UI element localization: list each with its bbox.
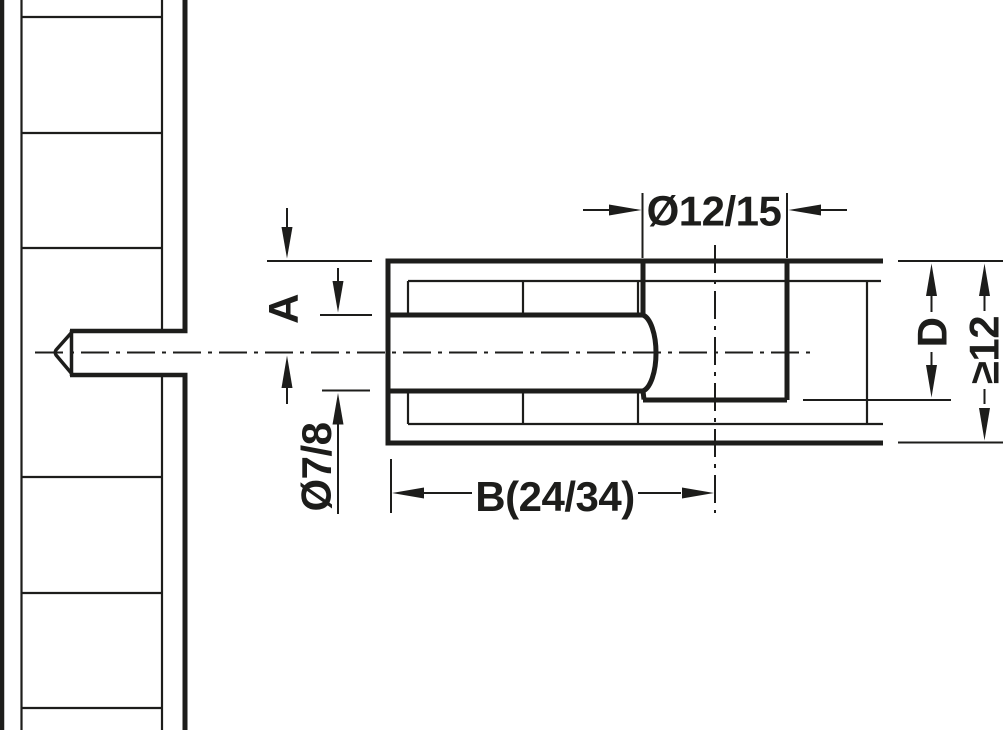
label-bore-depth: D — [909, 318, 956, 348]
arrow-up-icon — [333, 393, 344, 425]
dimension-depth: B(24/34) — [391, 459, 714, 520]
dimension-panel-thickness: ≥12 — [898, 264, 1008, 443]
arrow-up-icon — [282, 356, 293, 389]
bore-end-arc — [643, 315, 656, 400]
arrow-right-icon — [682, 488, 714, 499]
label-panel-thickness: ≥12 — [961, 316, 1008, 384]
left-panel-section — [2, 0, 185, 730]
arrow-left-icon — [789, 205, 822, 216]
technical-drawing: Ø12/15 A Ø7/8 B(24/34) — [0, 0, 1008, 730]
arrow-up-icon — [926, 264, 937, 297]
drawing-canvas: Ø12/15 A Ø7/8 B(24/34) — [0, 0, 1008, 730]
arrow-right-icon — [609, 205, 642, 216]
centerlines — [35, 245, 810, 513]
arrow-down-icon — [926, 365, 937, 398]
dimension-edge-distance: A — [260, 208, 372, 404]
arrow-up-icon — [979, 264, 990, 297]
arrow-left-icon — [392, 488, 424, 499]
arrow-down-icon — [282, 227, 293, 259]
bolt-threaded-tip — [55, 330, 187, 376]
label-bolt-diameter: Ø7/8 — [293, 422, 340, 511]
label-depth: B(24/34) — [475, 473, 634, 520]
label-top-diameter: Ø12/15 — [647, 188, 782, 235]
arrow-down-icon — [979, 408, 990, 441]
label-edge-distance: A — [260, 294, 307, 324]
arrow-down-icon — [333, 281, 344, 313]
